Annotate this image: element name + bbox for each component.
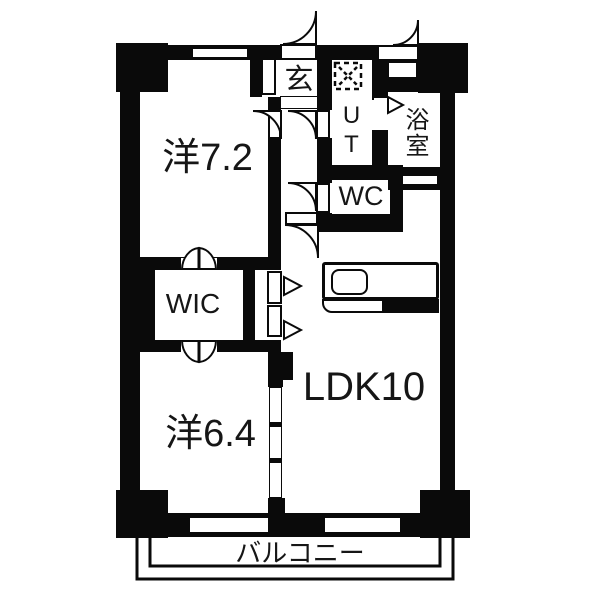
room-label-western-6-4: 洋6.4 <box>148 413 273 455</box>
room-label-bathroom: 浴室 <box>399 97 429 169</box>
ldk-door-arc <box>285 225 318 258</box>
room-label-ut: UT <box>337 93 365 169</box>
room-label-wic: WIC <box>155 289 231 319</box>
closet-folding-door-arrow-icon <box>284 277 301 295</box>
room-label-balcony: バルコニー <box>218 539 382 566</box>
room-label-ldk: LDK10 <box>290 365 438 409</box>
bifold-door-icon <box>182 341 216 362</box>
room-label-genkan: 玄 <box>282 63 316 97</box>
room72-door-arc <box>253 111 281 139</box>
entrance-door-arc <box>283 11 316 44</box>
room-label-wc: WC <box>331 181 391 211</box>
meterbox-door-arc <box>393 20 418 45</box>
ut-door-arc <box>288 111 316 139</box>
bifold-door-icon <box>182 248 216 269</box>
washing-machine-icon <box>335 63 361 89</box>
room-label-western-7-2: 洋7.2 <box>145 137 270 179</box>
wc-door-arc <box>288 183 316 211</box>
closet-folding-door-arrow-icon <box>284 321 301 339</box>
floor-plan: 洋7.2 玄 UT 浴室 WC WIC 洋6.4 LDK10 バルコニー <box>0 0 600 600</box>
